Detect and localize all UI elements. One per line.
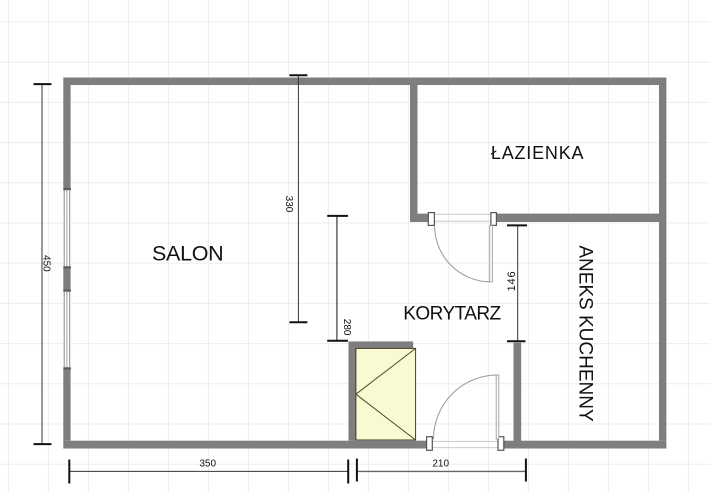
svg-text:146: 146 xyxy=(506,271,518,292)
svg-text:210: 210 xyxy=(432,458,449,469)
svg-text:280: 280 xyxy=(341,319,352,336)
svg-text:SALON: SALON xyxy=(152,242,223,266)
svg-text:ANEKS KUCHENNY: ANEKS KUCHENNY xyxy=(575,245,596,422)
svg-text:350: 350 xyxy=(199,459,216,470)
svg-text:ŁAZIENKA: ŁAZIENKA xyxy=(491,143,584,163)
svg-text:KORYTARZ: KORYTARZ xyxy=(403,304,501,325)
svg-text:450: 450 xyxy=(41,255,52,272)
svg-text:330: 330 xyxy=(283,196,294,213)
